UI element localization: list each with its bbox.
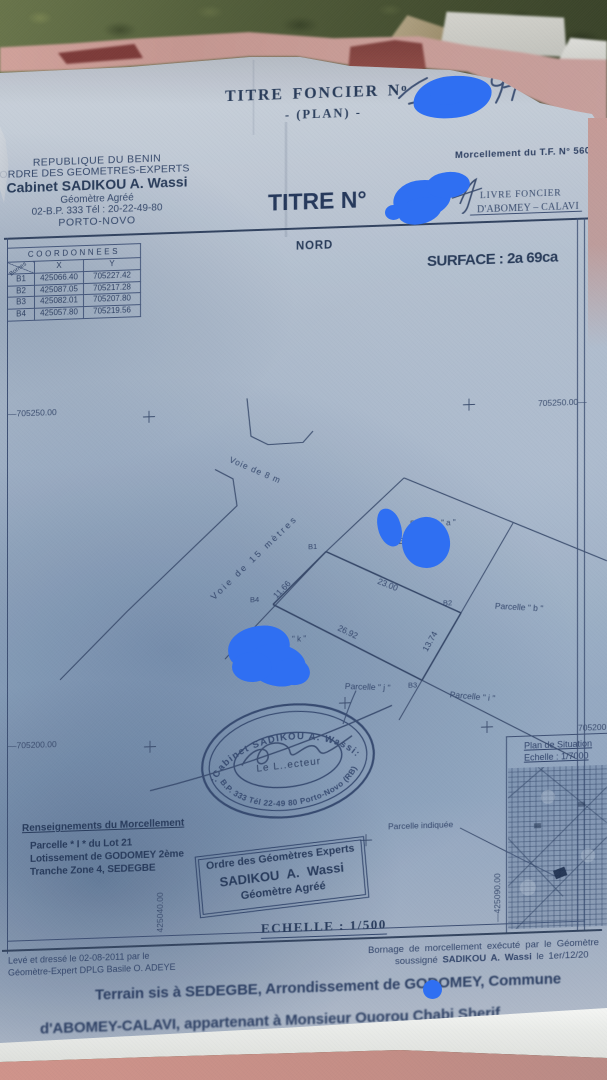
svg-text:B1: B1 <box>308 542 317 551</box>
svg-text:Parcelle " i ": Parcelle " i " <box>449 689 496 703</box>
svg-text:23.00: 23.00 <box>376 576 400 593</box>
svg-text:Parcelle " b ": Parcelle " b " <box>494 601 543 614</box>
svg-text:Parcelle indiquée: Parcelle indiquée <box>388 819 453 831</box>
svg-text:11.66: 11.66 <box>271 578 293 600</box>
svg-text:B2: B2 <box>443 598 452 607</box>
svg-text:Voie de 8 m: Voie de 8 m <box>228 454 283 485</box>
svg-text:13.74: 13.74 <box>420 629 439 653</box>
svg-text:" k ": " k " <box>292 634 306 643</box>
svg-text:B4: B4 <box>250 595 259 604</box>
